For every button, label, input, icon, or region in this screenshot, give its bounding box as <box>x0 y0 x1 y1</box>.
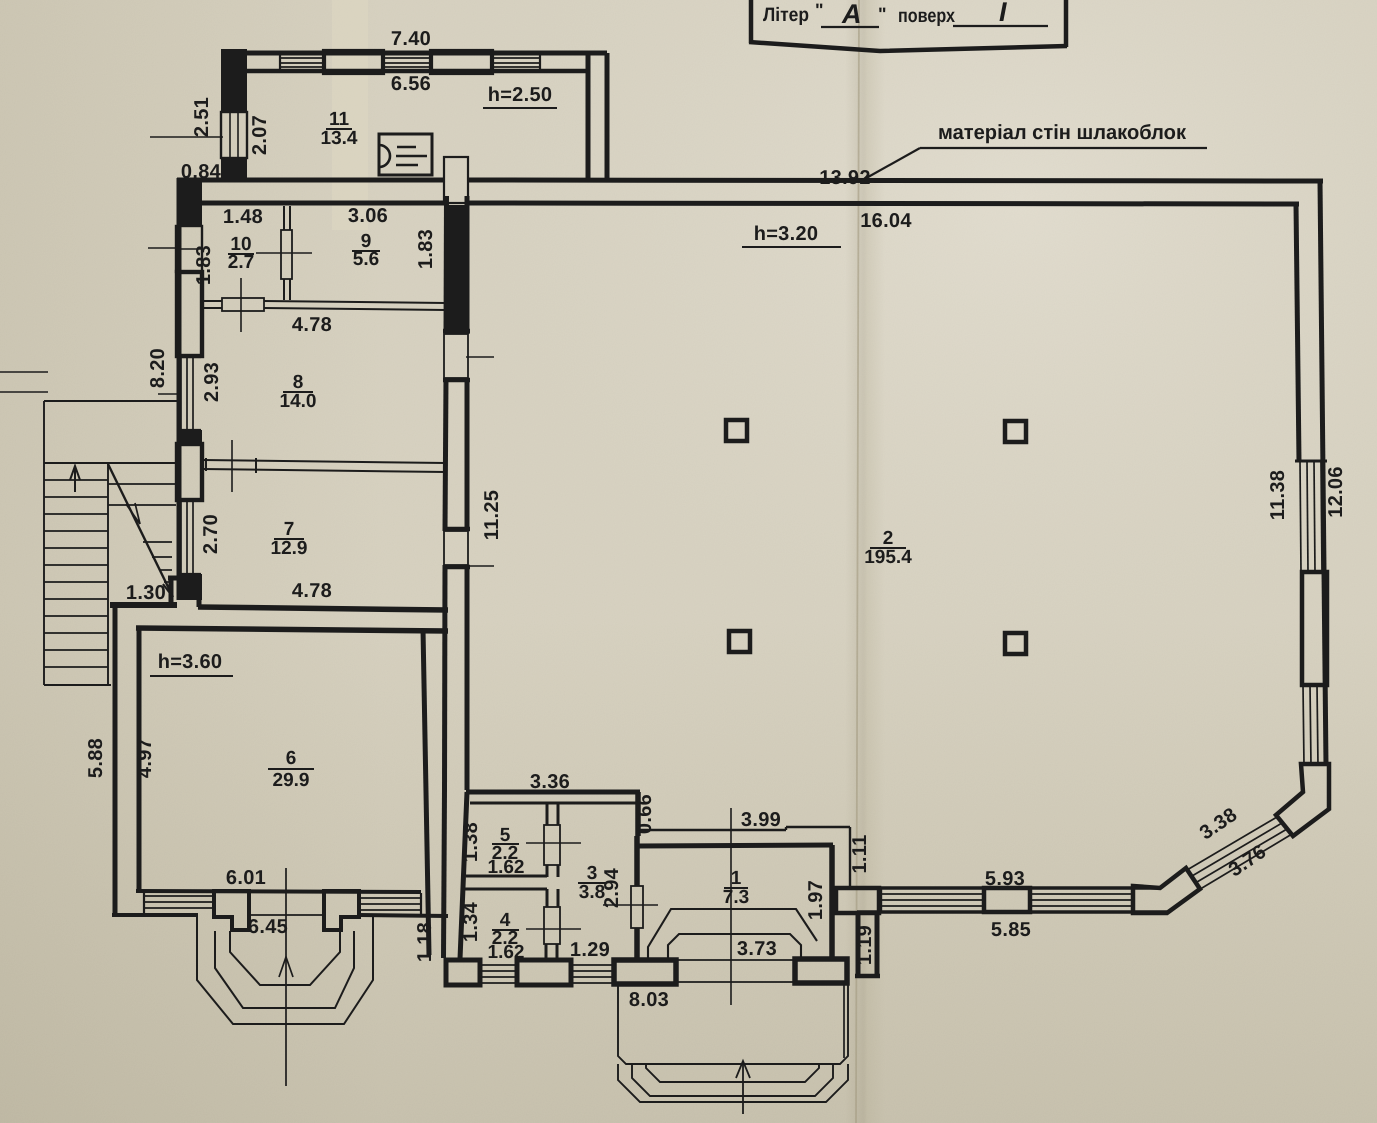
svg-text:8: 8 <box>293 372 304 393</box>
svg-text:3.06: 3.06 <box>348 205 388 227</box>
svg-text:11.25: 11.25 <box>481 490 503 540</box>
svg-text:1: 1 <box>731 868 742 889</box>
svg-text:6.56: 6.56 <box>391 73 431 95</box>
svg-text:6: 6 <box>286 748 297 769</box>
svg-text:12.9: 12.9 <box>271 538 308 559</box>
svg-text:3.99: 3.99 <box>741 809 781 831</box>
svg-text:7.3: 7.3 <box>723 887 749 908</box>
svg-text:h=3.60: h=3.60 <box>158 651 223 673</box>
svg-text:1.97: 1.97 <box>805 880 827 920</box>
svg-text:5.85: 5.85 <box>991 919 1031 941</box>
svg-text:1.83: 1.83 <box>193 245 215 285</box>
svg-text:3: 3 <box>587 863 598 884</box>
svg-text:4.97: 4.97 <box>134 738 156 778</box>
svg-text:5.88: 5.88 <box>85 738 107 778</box>
svg-text:2.07: 2.07 <box>249 115 271 155</box>
svg-text:5.6: 5.6 <box>353 249 379 270</box>
svg-text:6.01: 6.01 <box>226 867 266 889</box>
svg-text:11.38: 11.38 <box>1267 470 1289 520</box>
svg-text:7.40: 7.40 <box>391 28 431 50</box>
svg-text:2.94: 2.94 <box>601 867 623 908</box>
svg-text:195.4: 195.4 <box>864 547 912 568</box>
svg-text:5.93: 5.93 <box>985 868 1025 890</box>
svg-text:1.29: 1.29 <box>570 939 610 961</box>
svg-text:8.20: 8.20 <box>147 348 169 388</box>
svg-text:1.38: 1.38 <box>460 822 482 862</box>
svg-text:1.18: 1.18 <box>414 922 436 962</box>
svg-text:1.30: 1.30 <box>126 582 166 604</box>
svg-text:1.11: 1.11 <box>849 834 871 873</box>
svg-text:": " <box>815 0 824 20</box>
svg-text:0.66: 0.66 <box>634 794 656 834</box>
svg-text:2.93: 2.93 <box>201 362 223 402</box>
svg-text:13.92: 13.92 <box>819 167 871 189</box>
svg-text:А: А <box>841 0 862 29</box>
svg-text:4.78: 4.78 <box>292 580 332 602</box>
svg-text:6.45: 6.45 <box>248 916 288 938</box>
svg-text:І: І <box>999 0 1007 27</box>
svg-text:Літер: Літер <box>763 4 809 26</box>
svg-text:3.73: 3.73 <box>737 938 777 960</box>
svg-text:0.84: 0.84 <box>181 161 222 183</box>
svg-text:2.70: 2.70 <box>200 514 222 554</box>
svg-text:1.19: 1.19 <box>854 925 876 965</box>
svg-text:14.0: 14.0 <box>280 391 317 412</box>
svg-text:h=2.50: h=2.50 <box>488 84 553 106</box>
svg-text:2.51: 2.51 <box>191 97 213 137</box>
svg-text:2.7: 2.7 <box>228 252 254 273</box>
svg-text:1.34: 1.34 <box>460 901 482 942</box>
svg-text:8.03: 8.03 <box>629 989 669 1011</box>
svg-text:1.62: 1.62 <box>488 857 525 878</box>
svg-text:4.78: 4.78 <box>292 314 332 336</box>
svg-text:h=3.20: h=3.20 <box>754 223 819 245</box>
svg-text:12.06: 12.06 <box>1325 466 1347 518</box>
svg-text:11: 11 <box>329 109 350 130</box>
svg-text:матеріал стін шлакоблок: матеріал стін шлакоблок <box>938 121 1187 144</box>
svg-text:13.4: 13.4 <box>321 128 358 149</box>
svg-text:29.9: 29.9 <box>273 770 310 791</box>
svg-text:2: 2 <box>883 528 894 549</box>
svg-text:16.04: 16.04 <box>860 210 912 232</box>
svg-text:1.62: 1.62 <box>488 942 525 963</box>
svg-text:1.48: 1.48 <box>223 206 263 228</box>
svg-text:": " <box>878 4 887 24</box>
svg-text:1.83: 1.83 <box>415 229 437 269</box>
svg-text:3.36: 3.36 <box>530 771 570 793</box>
svg-text:7: 7 <box>284 519 295 540</box>
svg-text:поверх: поверх <box>898 5 955 27</box>
